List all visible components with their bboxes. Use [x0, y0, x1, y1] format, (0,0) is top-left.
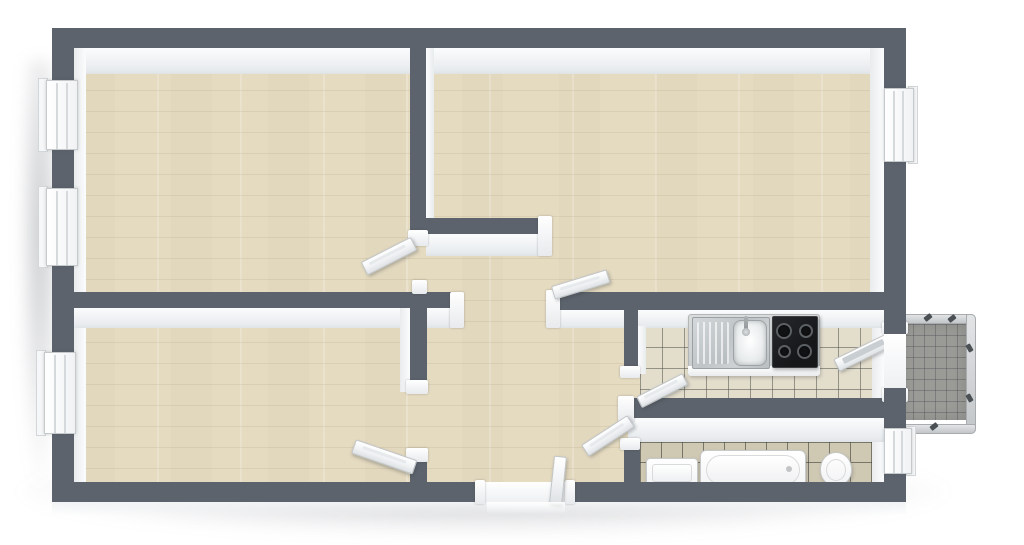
toilet-seat — [826, 459, 846, 481]
wall-between-top-rooms — [410, 48, 426, 232]
jamb — [620, 366, 640, 378]
east-wall-inner-face-top — [870, 48, 884, 298]
floor-plan-stage — [0, 0, 1024, 545]
washbasin-bowl — [652, 464, 692, 482]
balcony-floor — [902, 324, 966, 420]
balcony-door-threshold — [884, 334, 906, 388]
sink-drainboard — [697, 322, 729, 364]
wall-kitchen-north — [552, 292, 884, 310]
wall-face-v1-east — [426, 48, 434, 232]
jamb — [620, 438, 640, 450]
burner-icon — [778, 345, 791, 358]
wall-top-right-room-south-west — [426, 218, 544, 234]
jamb — [412, 280, 427, 294]
jamb — [406, 380, 428, 394]
exterior-wall-south-outer-face — [52, 502, 906, 516]
window-room-bl — [44, 352, 76, 434]
jamb — [450, 292, 464, 328]
floor-plan — [0, 0, 1024, 545]
wall-face-room-bl-north — [74, 308, 454, 328]
entrance-light-spill — [487, 502, 565, 514]
sink-basin — [733, 320, 767, 366]
jamb — [565, 480, 575, 504]
balcony-railing-east — [966, 314, 976, 434]
exterior-wall-north — [52, 28, 906, 48]
burner-icon — [776, 323, 792, 339]
jamb — [538, 216, 552, 256]
bathtub-drain — [786, 466, 792, 472]
wall-kitchen-west — [624, 310, 638, 374]
wall-kitchen-bathroom — [628, 398, 884, 418]
wall-bathroom-west — [624, 446, 640, 482]
wall-face-below-h1 — [426, 234, 544, 256]
balcony-railing-north — [900, 314, 976, 324]
burner-icon — [799, 324, 813, 338]
balcony — [896, 310, 980, 434]
east-wall-inner-face-bath — [872, 442, 884, 482]
wall-room-bl-north — [52, 292, 454, 308]
window-bathroom — [884, 428, 912, 474]
window-room-tl-2 — [46, 188, 78, 266]
north-wall-inner-face — [74, 48, 884, 74]
faucet-base — [742, 328, 750, 336]
window-room-tr — [884, 88, 914, 162]
burner-icon — [797, 344, 812, 359]
jamb — [475, 480, 485, 504]
window-room-tl-1 — [46, 80, 78, 150]
wall-face-bathroom-north — [628, 418, 884, 442]
